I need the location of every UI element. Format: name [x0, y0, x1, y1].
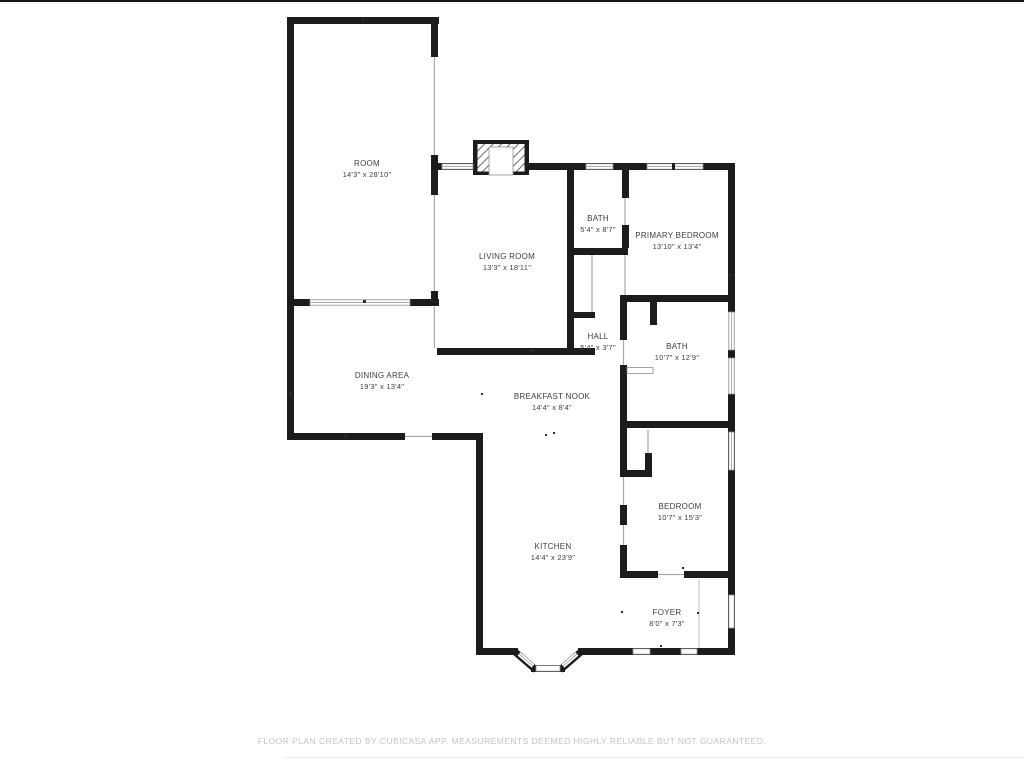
- bottom-divider-line: [285, 757, 1024, 758]
- room-dims: 10'7" x 15'3": [658, 512, 702, 522]
- room-dims: 14'3" x 28'10": [343, 169, 392, 179]
- front-door: [729, 595, 734, 628]
- room-dims: 10'7" x 12'9": [655, 352, 699, 362]
- room-label-dining-area: DINING AREA 19'3" x 13'4": [355, 371, 409, 391]
- dimension-ticks: [289, 19, 732, 648]
- room-label-foyer: FOYER 8'0" x 7'3": [649, 608, 685, 628]
- room-dims: 5'4" x 3'7": [580, 342, 616, 352]
- room-dims: 14'4" x 8'4": [514, 402, 590, 412]
- fireplace: [473, 140, 529, 175]
- room-label-kitchen: KITCHEN 14'4" x 23'9": [531, 542, 575, 562]
- room-dims: 13'10" x 13'4": [635, 241, 718, 251]
- room-label-living-room: LIVING ROOM 13'3" x 18'11": [479, 252, 535, 272]
- room-label-primary-bedroom: PRIMARY BEDROOM 13'10" x 13'4": [635, 231, 718, 251]
- room-name: HALL: [580, 332, 616, 343]
- room-label-bath-upper: BATH 5'4" x 8'7": [580, 214, 616, 234]
- room-name: FOYER: [649, 608, 685, 619]
- floor-plan-canvas: ROOM 14'3" x 28'10" LIVING ROOM 13'3" x …: [0, 0, 1024, 768]
- room-name: KITCHEN: [531, 542, 575, 553]
- room-name: BEDROOM: [658, 502, 702, 513]
- room-dims: 5'4" x 8'7": [580, 224, 616, 234]
- bay-window: [514, 651, 582, 671]
- room-label-breakfast-nook: BREAKFAST NOOK 14'4" x 8'4": [514, 392, 590, 412]
- room-dims: 19'3" x 13'4": [355, 381, 409, 391]
- room-label-hall: HALL 5'4" x 3'7": [580, 332, 616, 352]
- room-name: ROOM: [343, 159, 392, 170]
- floor-plan-disclaimer: FLOOR PLAN CREATED BY CUBICASA APP. MEAS…: [0, 736, 1024, 746]
- bath-vanity: [627, 368, 653, 374]
- room-name: LIVING ROOM: [479, 252, 535, 263]
- room-name: BATH: [580, 214, 616, 225]
- room-name: BREAKFAST NOOK: [514, 392, 590, 403]
- room-dims: 8'0" x 7'3": [649, 618, 685, 628]
- room-label-room: ROOM 14'3" x 28'10": [343, 159, 392, 179]
- room-name: BATH: [655, 342, 699, 353]
- walls-group: [287, 17, 735, 655]
- room-name: DINING AREA: [355, 371, 409, 382]
- room-dims: 14'4" x 23'9": [531, 552, 575, 562]
- room-name: PRIMARY BEDROOM: [635, 231, 718, 242]
- floor-plan-drawing: [0, 0, 1024, 768]
- room-label-bath-lower: BATH 10'7" x 12'9": [655, 342, 699, 362]
- room-dims: 13'3" x 18'11": [479, 262, 535, 272]
- room-label-bedroom: BEDROOM 10'7" x 15'3": [658, 502, 702, 522]
